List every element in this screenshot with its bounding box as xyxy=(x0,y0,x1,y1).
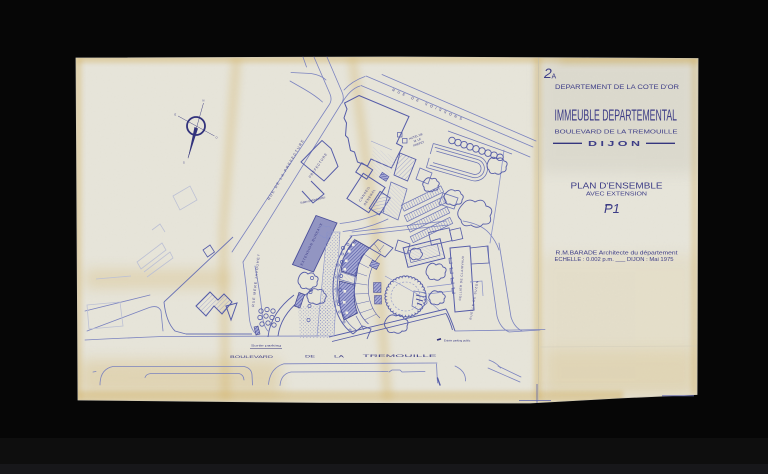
svg-text:S: S xyxy=(183,161,185,165)
svg-text:BOULEVARD DE LA TREMOUILLE: BOULEVARD DE LA TREMOUILLE xyxy=(555,129,678,135)
svg-text:TREMOUILLE: TREMOUILLE xyxy=(363,354,438,358)
svg-text:E: E xyxy=(175,113,177,117)
svg-text:IMMEUBLE DEPARTEMENTAL: IMMEUBLE DEPARTEMENTAL xyxy=(555,108,678,125)
svg-text:O: O xyxy=(216,136,218,140)
svg-text:LA: LA xyxy=(334,355,345,359)
svg-text:ECHELLE : 0.002 p.m. ___ DIJON: ECHELLE : 0.002 p.m. ___ DIJON : Mai 197… xyxy=(555,257,674,263)
svg-text:AVEC EXTENSION: AVEC EXTENSION xyxy=(586,191,647,197)
svg-text:P1: P1 xyxy=(604,201,620,216)
svg-text:PLAN D'ENSEMBLE: PLAN D'ENSEMBLE xyxy=(571,182,663,191)
svg-text:Entrée parking public: Entrée parking public xyxy=(444,339,471,343)
svg-text:Sortie parking: Sortie parking xyxy=(251,344,282,348)
svg-text:DEPARTEMENT DE LA COTE D'O: DEPARTEMENT DE LA COTE D'OR xyxy=(555,84,679,91)
svg-text:DE: DE xyxy=(305,355,316,359)
svg-text:D I J O N: D I J O N xyxy=(588,139,640,148)
svg-text:R.M.BARADE Architecte du: R.M.BARADE Architecte du département xyxy=(556,251,679,257)
svg-text:BOULEVARD: BOULEVARD xyxy=(230,355,273,359)
svg-text:N: N xyxy=(203,99,205,103)
svg-text:A: A xyxy=(552,74,557,81)
